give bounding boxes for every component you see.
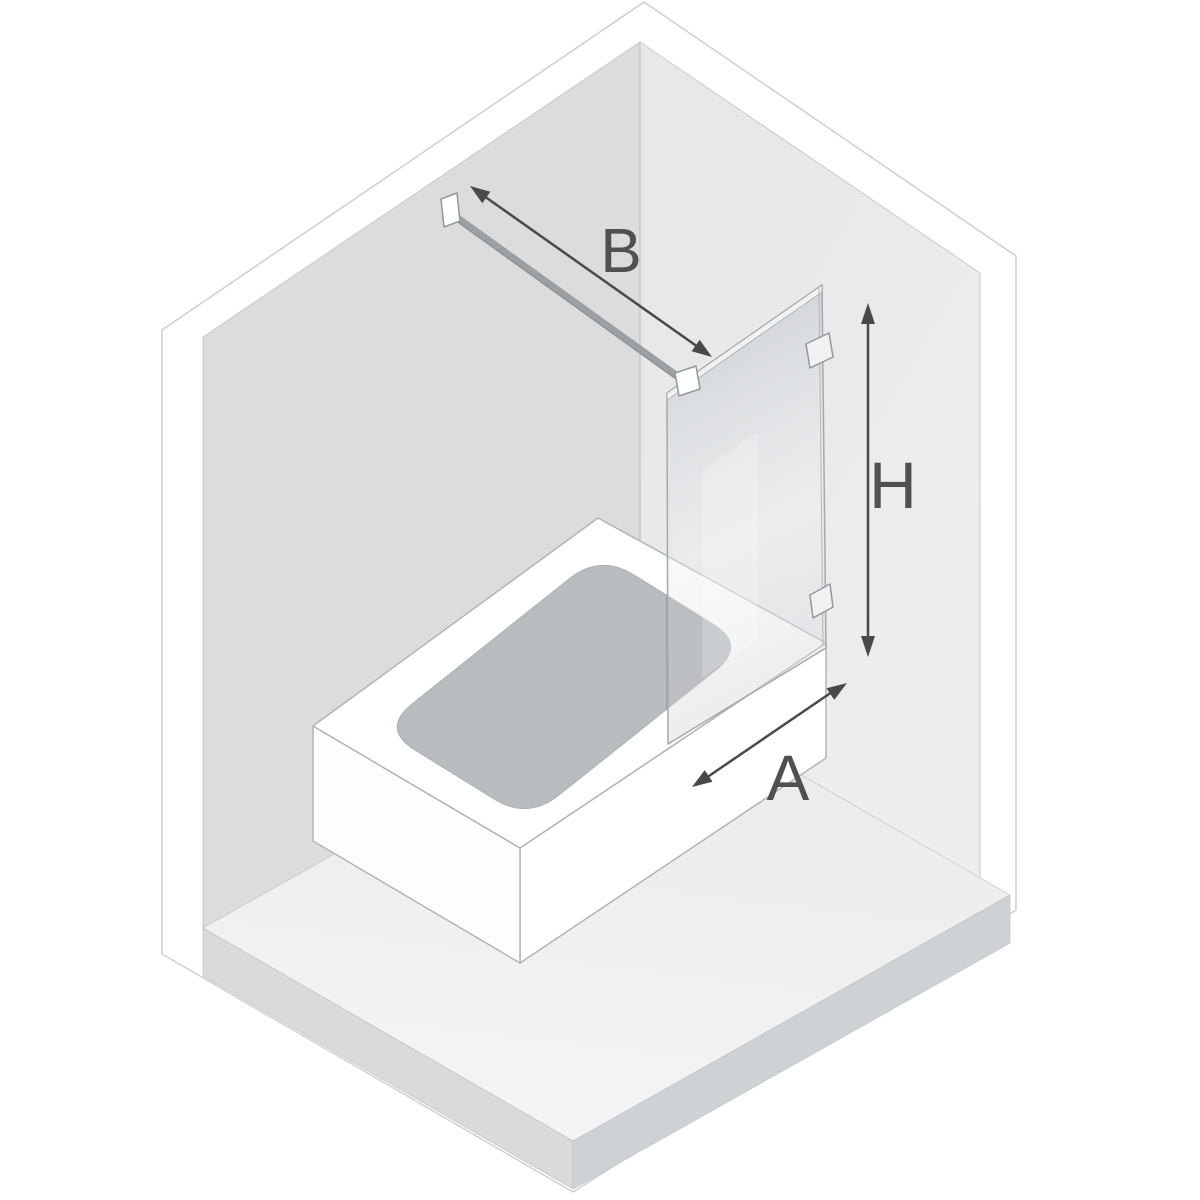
diagram-canvas: B H A — [0, 0, 1200, 1200]
label-h: H — [869, 448, 917, 522]
label-a: A — [767, 742, 810, 814]
bathtub-screen-diagram: B H A — [0, 0, 1200, 1200]
label-b: B — [600, 217, 641, 286]
glass-reflection — [702, 432, 758, 678]
wall-bracket — [441, 193, 460, 227]
